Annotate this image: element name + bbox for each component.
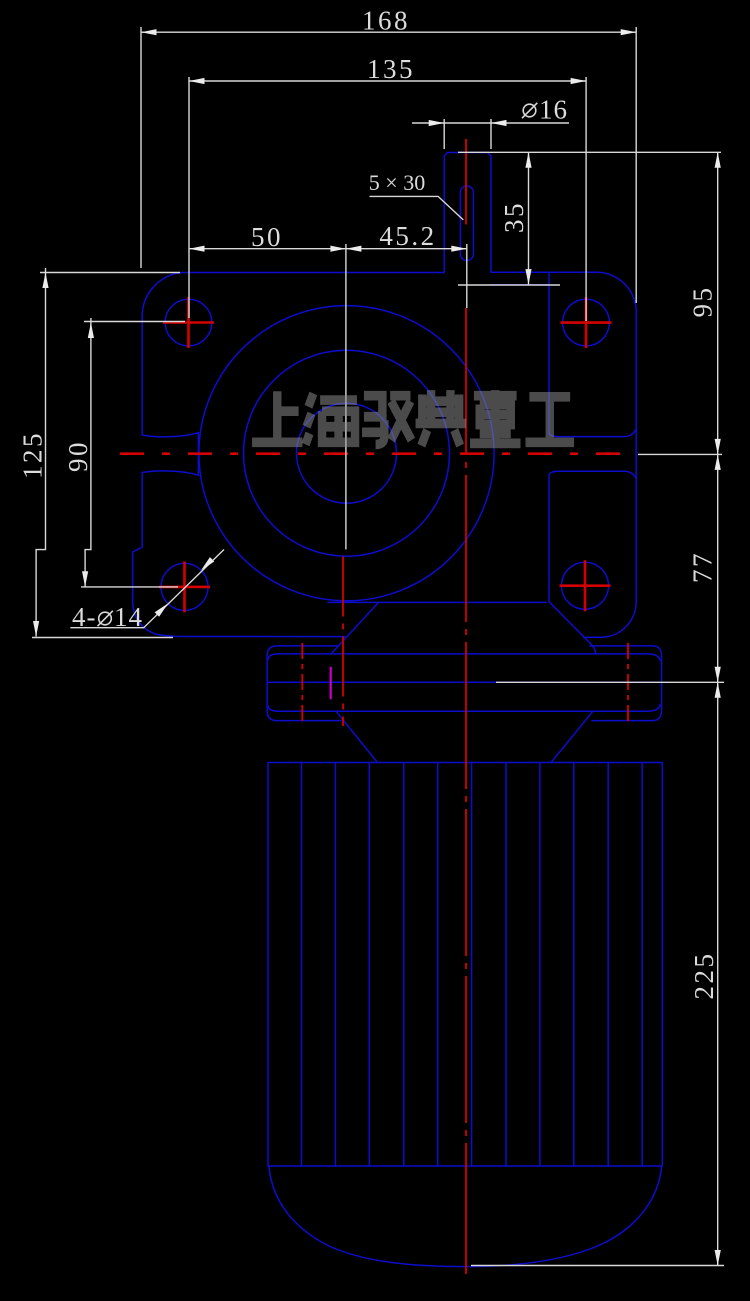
svg-text:5 × 30: 5 × 30	[369, 170, 425, 195]
svg-text:90: 90	[63, 440, 93, 472]
svg-text:225: 225	[689, 952, 719, 1000]
svg-text:14: 14	[114, 602, 143, 632]
svg-text:95: 95	[688, 286, 718, 318]
svg-text:16: 16	[539, 95, 568, 125]
svg-text:168: 168	[362, 6, 410, 36]
svg-text:4-: 4-	[72, 602, 97, 632]
svg-text:125: 125	[18, 431, 48, 479]
svg-text:77: 77	[688, 551, 718, 583]
svg-text:35: 35	[499, 201, 529, 233]
svg-text:135: 135	[367, 54, 415, 84]
svg-text:50: 50	[251, 222, 283, 252]
svg-text:45.2: 45.2	[379, 221, 436, 251]
